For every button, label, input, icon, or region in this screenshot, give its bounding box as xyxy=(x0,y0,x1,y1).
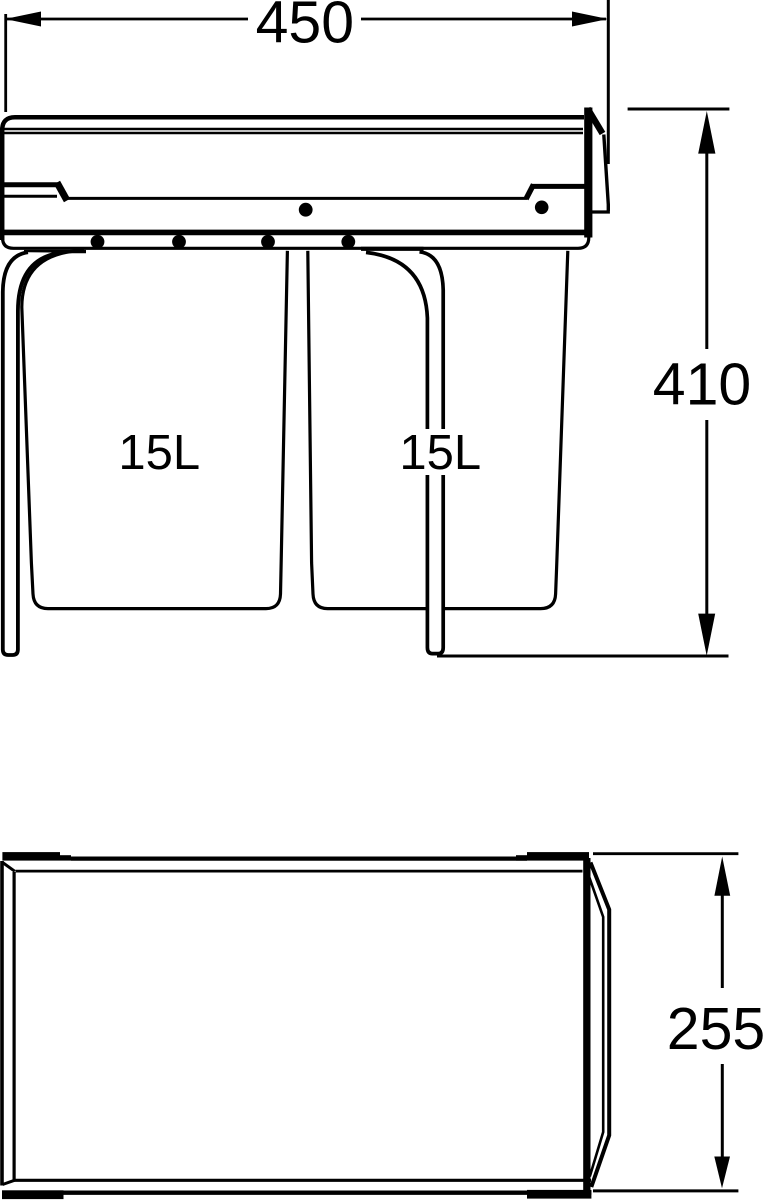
svg-text:410: 410 xyxy=(653,352,751,418)
svg-text:15L: 15L xyxy=(399,426,481,480)
svg-text:255: 255 xyxy=(667,996,763,1062)
svg-text:450: 450 xyxy=(256,0,354,56)
svg-text:15L: 15L xyxy=(118,426,200,480)
